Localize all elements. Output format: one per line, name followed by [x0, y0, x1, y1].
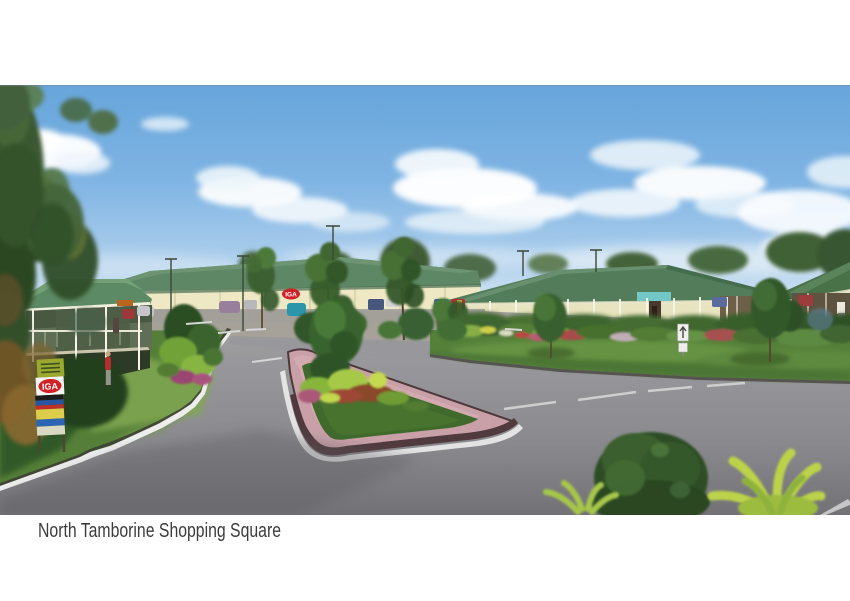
svg-text:IGA: IGA	[42, 381, 59, 392]
svg-text:IGA: IGA	[285, 292, 297, 299]
